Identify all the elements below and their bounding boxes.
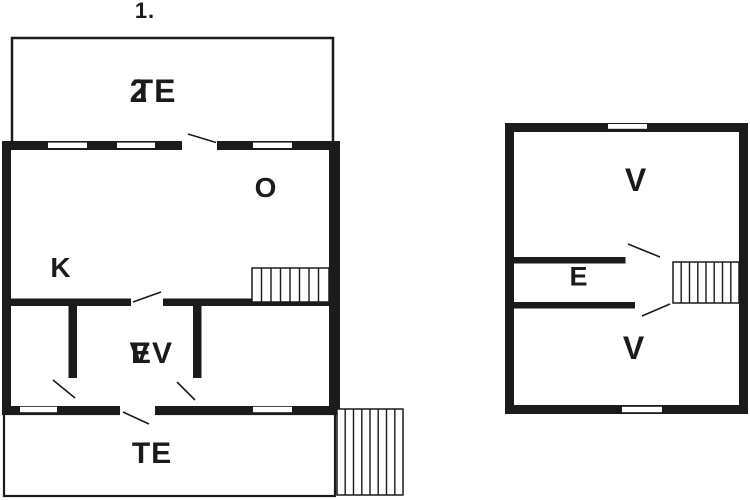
- door-swing: [53, 380, 75, 398]
- room-label-lower-terrace: TE: [132, 439, 172, 469]
- window: [253, 143, 292, 148]
- door-opening: [120, 404, 155, 417]
- window: [253, 407, 292, 412]
- floor-plan-page: 1. 2 TE O K V EV TE V E V: [0, 0, 750, 500]
- door-swing: [642, 304, 670, 316]
- door-swing: [133, 292, 161, 302]
- window: [48, 143, 87, 148]
- interior-wall: [514, 302, 635, 309]
- window: [20, 407, 57, 412]
- window: [117, 143, 155, 148]
- room-label-annex-hall: E: [569, 264, 588, 291]
- interior-wall: [69, 306, 78, 378]
- door-swing: [177, 382, 195, 400]
- room-label-annex-top: V: [625, 164, 647, 196]
- staircase: [673, 262, 739, 303]
- window: [608, 124, 647, 129]
- floor-number-label: 1.: [135, 0, 155, 22]
- room-label-living: O: [255, 174, 278, 202]
- staircase: [252, 268, 329, 302]
- interior-wall: [193, 306, 202, 378]
- window: [622, 407, 662, 412]
- room-label-annex-bottom: V: [623, 332, 645, 364]
- interior-wall: [11, 299, 131, 307]
- door-swing: [628, 244, 660, 257]
- room-label-upper-terrace: TE: [134, 75, 177, 107]
- room-label-middle: EV: [131, 339, 173, 369]
- exterior-steps: [337, 409, 403, 495]
- room-label-kitchen: K: [50, 254, 71, 282]
- floor-plan-drawing: [0, 0, 750, 500]
